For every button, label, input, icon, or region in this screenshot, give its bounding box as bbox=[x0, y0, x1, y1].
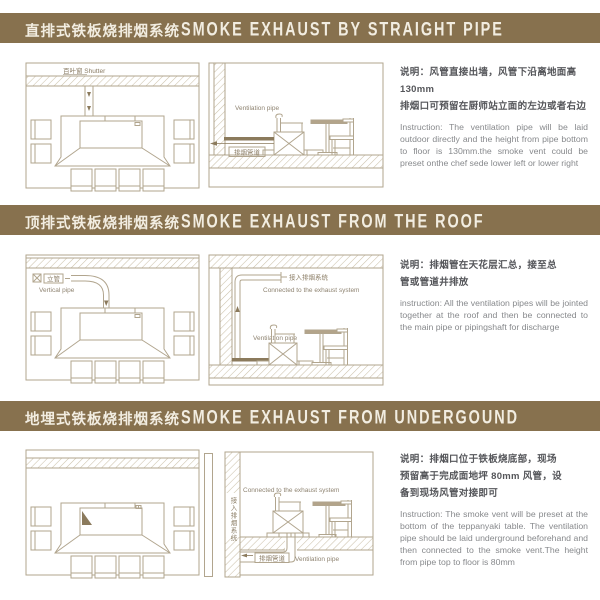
vent-tip-curl bbox=[276, 114, 282, 118]
top-view-straight-pipe-diagram: 百叶窗 Shutter bbox=[25, 58, 200, 198]
shutter-label: 百叶窗 Shutter bbox=[63, 66, 106, 75]
ventilation-pipe-label: Ventilation pipe bbox=[235, 105, 279, 112]
exhaust-pipe bbox=[224, 137, 274, 141]
flow-arrow-icon bbox=[241, 554, 247, 558]
section3-title-en: SMOKE EXHAUST FROM UNDERGOUND bbox=[181, 405, 519, 428]
wall-hatch bbox=[26, 76, 199, 86]
teppanyaki-table-side bbox=[273, 493, 303, 533]
section1-title-en: SMOKE EXHAUST BY STRAIGHT PIPE bbox=[181, 17, 504, 40]
ceiling-hatch bbox=[209, 255, 383, 268]
wall-hatch bbox=[225, 452, 240, 493]
top-view-roof-diagram: 立管 Vertical pipe bbox=[25, 250, 200, 390]
straight-duct bbox=[85, 86, 93, 116]
wall-hatch bbox=[26, 258, 199, 268]
ventilation-pipe-label: Ventilation pipe bbox=[295, 556, 339, 563]
instruction-zh: 说明：排烟管在天花层汇总，接至总 管或管道井排放 bbox=[400, 257, 588, 291]
flow-arrow-icon bbox=[235, 306, 240, 312]
wall-gap-strip bbox=[204, 453, 213, 577]
riser-icon bbox=[33, 274, 41, 282]
floor-hatch bbox=[209, 365, 383, 378]
curved-duct bbox=[71, 276, 109, 310]
section-header-straight-pipe: 直排式铁板烧排烟系统 SMOKE EXHAUST BY STRAIGHT PIP… bbox=[0, 13, 600, 43]
instruction-en: Instruction: The ventilation pipe will b… bbox=[400, 121, 588, 169]
instruction-block-roof: 说明：排烟管在天花层汇总，接至总 管或管道井排放 instruction: Al… bbox=[400, 257, 588, 333]
instruction-en: instruction: All the ventilation pipes w… bbox=[400, 297, 588, 333]
wall-hatch bbox=[26, 458, 199, 468]
connect-exhaust-vertical-label: 接入排烟系统 bbox=[227, 497, 237, 542]
section1-title-zh: 直排式铁板烧排烟系统 bbox=[25, 20, 180, 41]
riser-label: 立管 bbox=[47, 274, 61, 283]
connect-exhaust-label-en: Connected to the exhaust system bbox=[243, 487, 339, 494]
floor-hatch bbox=[240, 537, 373, 550]
instruction-zh: 说明：风管直接出墙，风管下沿离地面高 130mm 排烟口可预留在厨师站立面的左边… bbox=[400, 64, 588, 115]
teppanyaki-table-top bbox=[55, 503, 170, 553]
flow-arrow-icon bbox=[87, 106, 91, 111]
flow-arrow-icon bbox=[87, 92, 91, 97]
teppanyaki-table-side bbox=[274, 114, 304, 155]
exhaust-duct-label: 排烟管道 bbox=[259, 554, 286, 563]
section-header-roof: 顶排式铁板烧排烟系统 SMOKE EXHAUST FROM THE ROOF bbox=[0, 205, 600, 235]
section-header-underground: 地埋式铁板烧排烟系统 SMOKE EXHAUST FROM UNDERGOUND bbox=[0, 401, 600, 431]
vertical-pipe-label: Vertical pipe bbox=[39, 287, 75, 294]
teppanyaki-table-side bbox=[269, 325, 297, 365]
flow-arrow-icon bbox=[104, 301, 109, 307]
wall-hatch bbox=[220, 268, 232, 365]
side-view-underground-diagram: Connected to the exhaust system 排烟管道 Ven… bbox=[225, 445, 390, 595]
dining-table-and-chair bbox=[311, 118, 354, 155]
wall-hatch bbox=[214, 63, 225, 155]
top-view-underground-diagram bbox=[25, 445, 200, 585]
teppanyaki-table-top bbox=[55, 308, 170, 358]
wall-hatch bbox=[225, 537, 240, 577]
instruction-block-underground: 说明：排烟口位于铁板烧底部，现场 预留高于完成面地坪 80mm 风管，设 备到现… bbox=[400, 451, 588, 568]
connect-exhaust-label-en: Connected to the exhaust system bbox=[263, 287, 359, 294]
side-view-roof-diagram: 接入排烟系统 Connected to the exhaust system V… bbox=[207, 250, 385, 390]
instruction-block-straight-pipe: 说明：风管直接出墙，风管下沿离地面高 130mm 排烟口可预留在厨师站立面的左边… bbox=[400, 64, 588, 169]
section3-title-zh: 地埋式铁板烧排烟系统 bbox=[25, 408, 180, 429]
teppanyaki-table-top bbox=[55, 116, 170, 166]
side-view-straight-pipe-diagram: Ventilation pipe 排烟管道 bbox=[207, 58, 385, 190]
vent-tip-curl bbox=[270, 325, 276, 329]
connect-exhaust-label-zh: 接入排烟系统 bbox=[289, 273, 329, 282]
section2-title-en: SMOKE EXHAUST FROM THE ROOF bbox=[181, 209, 485, 232]
dining-table-and-chair bbox=[313, 500, 352, 537]
section2-title-zh: 顶排式铁板烧排烟系统 bbox=[25, 212, 180, 233]
instruction-zh: 说明：排烟口位于铁板烧底部，现场 预留高于完成面地坪 80mm 风管，设 备到现… bbox=[400, 451, 588, 502]
exhaust-duct-label: 排烟管道 bbox=[234, 148, 261, 157]
instruction-en: Instruction: The smoke vent will be pres… bbox=[400, 508, 588, 568]
dining-table-and-chair bbox=[305, 328, 348, 365]
